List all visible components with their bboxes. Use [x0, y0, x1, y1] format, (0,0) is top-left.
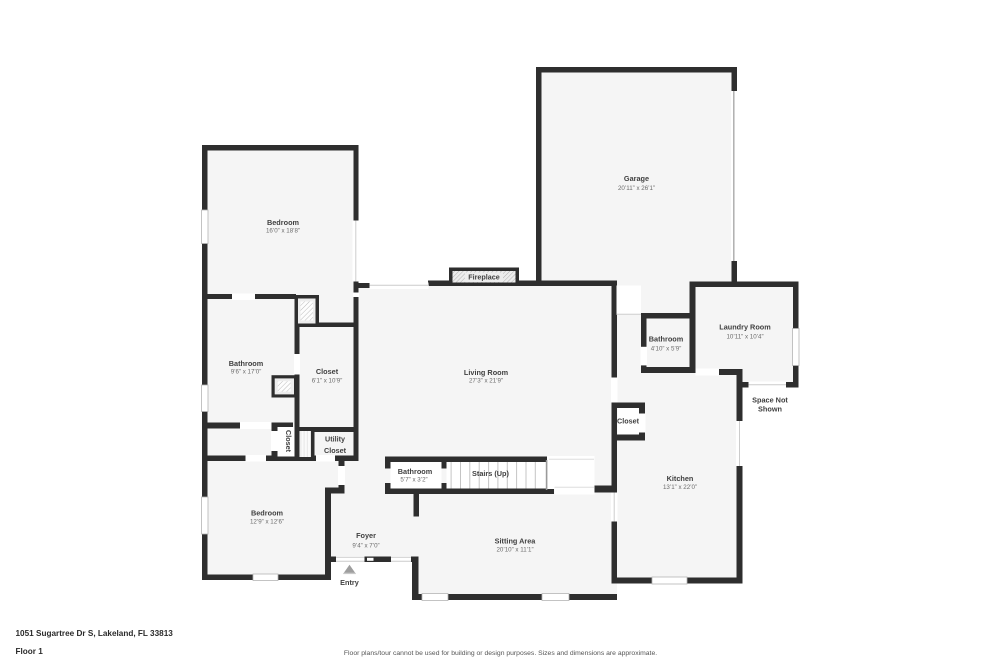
svg-text:1051 Sugartree Dr S, Lakeland,: 1051 Sugartree Dr S, Lakeland, FL 33813 [16, 629, 174, 638]
svg-text:9’4” x 7’0”: 9’4” x 7’0” [352, 542, 379, 549]
svg-text:Laundry Room: Laundry Room [719, 322, 771, 331]
svg-text:13’1” x 22’0”: 13’1” x 22’0” [663, 484, 697, 491]
svg-text:Entry: Entry [340, 578, 360, 587]
svg-text:Closet: Closet [324, 446, 347, 455]
svg-text:5’7” x 3’2”: 5’7” x 3’2” [400, 476, 427, 483]
svg-text:6’1” x 10’9”: 6’1” x 10’9” [312, 378, 343, 385]
svg-text:16’0” x 18’8”: 16’0” x 18’8” [266, 228, 300, 235]
svg-text:Closet: Closet [316, 367, 339, 376]
svg-text:Closet: Closet [284, 430, 293, 453]
svg-text:Bathroom: Bathroom [649, 335, 684, 344]
svg-text:20’10” x 11’1”: 20’10” x 11’1” [496, 547, 533, 554]
svg-text:Stairs (Up): Stairs (Up) [472, 469, 509, 478]
svg-text:4’10” x 5’9”: 4’10” x 5’9” [651, 345, 682, 352]
svg-text:Bedroom: Bedroom [267, 218, 300, 227]
svg-text:Utility: Utility [325, 434, 345, 443]
svg-text:Foyer: Foyer [356, 531, 376, 540]
svg-text:Space Not: Space Not [752, 396, 788, 405]
svg-text:9’6” x 17’0”: 9’6” x 17’0” [231, 369, 262, 376]
svg-text:Floor plans/tour cannot be use: Floor plans/tour cannot be used for buil… [344, 650, 657, 657]
svg-text:20’11” x 26’1”: 20’11” x 26’1” [618, 185, 655, 192]
svg-text:12’9” x 12’6”: 12’9” x 12’6” [250, 518, 284, 525]
svg-text:Garage: Garage [624, 174, 649, 183]
svg-text:Bathroom: Bathroom [229, 359, 264, 368]
svg-text:Bedroom: Bedroom [251, 509, 284, 518]
svg-text:Sitting Area: Sitting Area [495, 537, 537, 546]
svg-text:Fireplace: Fireplace [468, 272, 500, 281]
svg-text:Shown: Shown [758, 405, 782, 414]
svg-text:Living Room: Living Room [464, 368, 509, 377]
svg-text:10’11” x 10’4”: 10’11” x 10’4” [726, 333, 763, 340]
svg-text:27’3” x 21’9”: 27’3” x 21’9” [469, 378, 503, 385]
svg-text:Bathroom: Bathroom [398, 467, 433, 476]
svg-text:Kitchen: Kitchen [667, 474, 694, 483]
svg-text:Floor 1: Floor 1 [16, 647, 44, 656]
svg-text:Closet: Closet [617, 417, 640, 426]
